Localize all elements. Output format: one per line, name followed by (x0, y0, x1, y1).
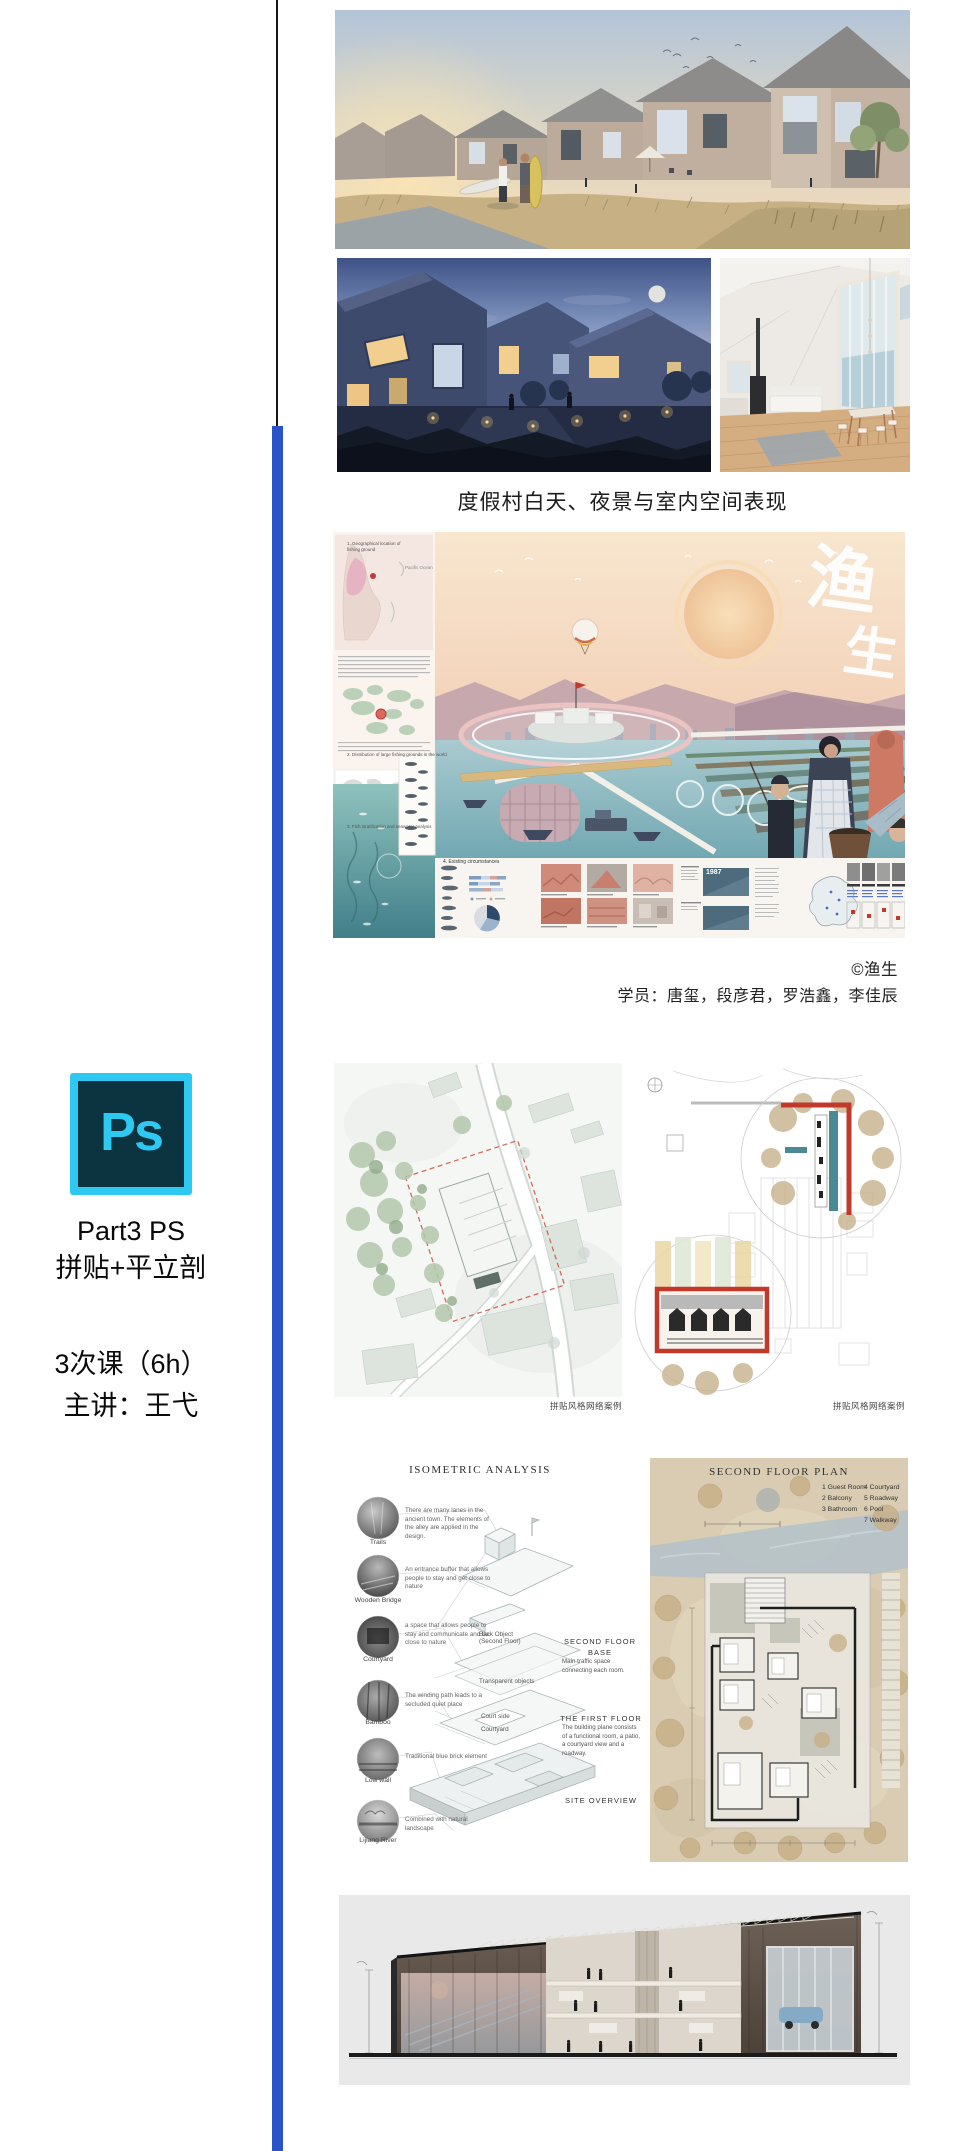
poster-section1-heading: 1. Geographical location of fishing grou… (347, 541, 409, 553)
iso-item-label: Bamboo (346, 1719, 410, 1726)
iso-block2-heading: THE FIRST FLOOR (558, 1714, 644, 1723)
iso-block1-body: Main traffic space connecting each room. (562, 1658, 642, 1675)
iso-item-note: The winding path leads to a secluded qui… (405, 1692, 497, 1709)
poster-left-strip (333, 532, 435, 938)
course-topic: 拼贴+平立剖 (0, 1252, 262, 1284)
poster-section2-heading: 2. Distribution of large fishing grounds… (347, 752, 487, 758)
legend-bathroom: 3 Bathroom (822, 1506, 857, 1513)
poster-credit: ©渔生 (335, 956, 898, 980)
legend-courtyard: 4 Courtyard (864, 1484, 900, 1491)
moon (649, 286, 666, 303)
iso-item-note: Combined with natural landscape (405, 1816, 497, 1833)
axon-label-transparent: Transparent objects (479, 1678, 534, 1685)
axon-label-second-floor: (Second Floor) (479, 1638, 521, 1645)
poster-bottom-strip (435, 858, 905, 938)
iso-block1-heading2: BASE (560, 1648, 640, 1657)
poster-year-label: 1987 (706, 869, 722, 876)
poster-section4-heading: 4. Existing circumstances (443, 859, 513, 866)
isometric-panel-title: ISOMETRIC ANALYSIS (335, 1464, 625, 1476)
poster-calligraphy-sheng: 生 (841, 623, 902, 684)
iso-item-label: Lijiang River (346, 1837, 410, 1844)
vertical-divider-blue (272, 426, 283, 2151)
legend-roadway: 5 Roadway (864, 1495, 898, 1502)
poster-section3-heading: 3. Fish stratification and seawater anal… (347, 824, 487, 830)
daytime-render-image (335, 10, 910, 249)
stove (750, 376, 766, 416)
legend-balcony: 2 Balcony (822, 1495, 852, 1502)
siteplan-detail-image (633, 1063, 905, 1397)
iso-item-label: Low wall (346, 1777, 410, 1784)
poster-calligraphy-yu: 渔 (803, 541, 882, 620)
course-promo-page: 度假村白天、夜景与室内空间表现 (0, 0, 960, 2151)
photoshop-logo: Ps (70, 1073, 192, 1195)
photo-circles (357, 1497, 399, 1842)
siteplan-left-caption: 拼贴风格网络案例 (334, 1400, 622, 1412)
street-backdrop (401, 1973, 546, 2053)
iso-item-note: Traditional blue brick element (405, 1753, 497, 1762)
sofa (770, 386, 822, 412)
student-names: 学员：唐玺，段彦君，罗浩鑫，李佳辰 (335, 982, 898, 1006)
course-sessions: 3次课（6h） (0, 1348, 262, 1380)
floorplan-title: SECOND FLOOR PLAN (650, 1466, 908, 1478)
gable-window (838, 272, 898, 416)
glass-room (767, 1947, 853, 2051)
legend-guest-room: 1 Guest Room (822, 1484, 866, 1491)
legend-pool: 6 Pool (864, 1506, 883, 1513)
iso-block3-heading: SITE OVERVIEW (556, 1796, 646, 1805)
staircase (745, 1578, 785, 1623)
siteplan-right-caption: 拼贴风格网络案例 (633, 1400, 905, 1412)
legend-walkway: 7 Walkway (864, 1517, 897, 1524)
axon-label-courtyard: Courtyard (481, 1726, 509, 1733)
course-part-title: Part3 PS (0, 1215, 262, 1247)
interior-render-image (720, 258, 910, 472)
caption-resort-renders: 度假村白天、夜景与室内空间表现 (335, 486, 910, 516)
building-section-image (339, 1895, 910, 2085)
vertical-divider-black (276, 0, 278, 426)
sun (684, 569, 774, 659)
poster-map-label: Pacific Ocean (405, 565, 433, 571)
siteplan-watercolor-image (334, 1063, 622, 1397)
iso-item-note: There are many lanes in the ancient town… (405, 1507, 497, 1541)
iso-block1-heading: SECOND FLOOR (560, 1637, 640, 1646)
iso-item-label: Courtyard (346, 1656, 410, 1663)
iso-item-label: Wooden Bridge (346, 1597, 410, 1604)
course-teacher: 主讲：王弋 (0, 1390, 262, 1422)
iso-item-label: Trails (346, 1539, 410, 1546)
photoshop-logo-text: Ps (100, 1101, 162, 1163)
iso-item-note: An entrance buffer that allows people to… (405, 1566, 497, 1592)
axon-label-back-object: Back Object (479, 1631, 513, 1638)
night-render-image (337, 258, 711, 472)
axon-label-court-side: Court side (481, 1713, 510, 1720)
iso-block2-body: The building plane consists of a functio… (562, 1724, 642, 1759)
